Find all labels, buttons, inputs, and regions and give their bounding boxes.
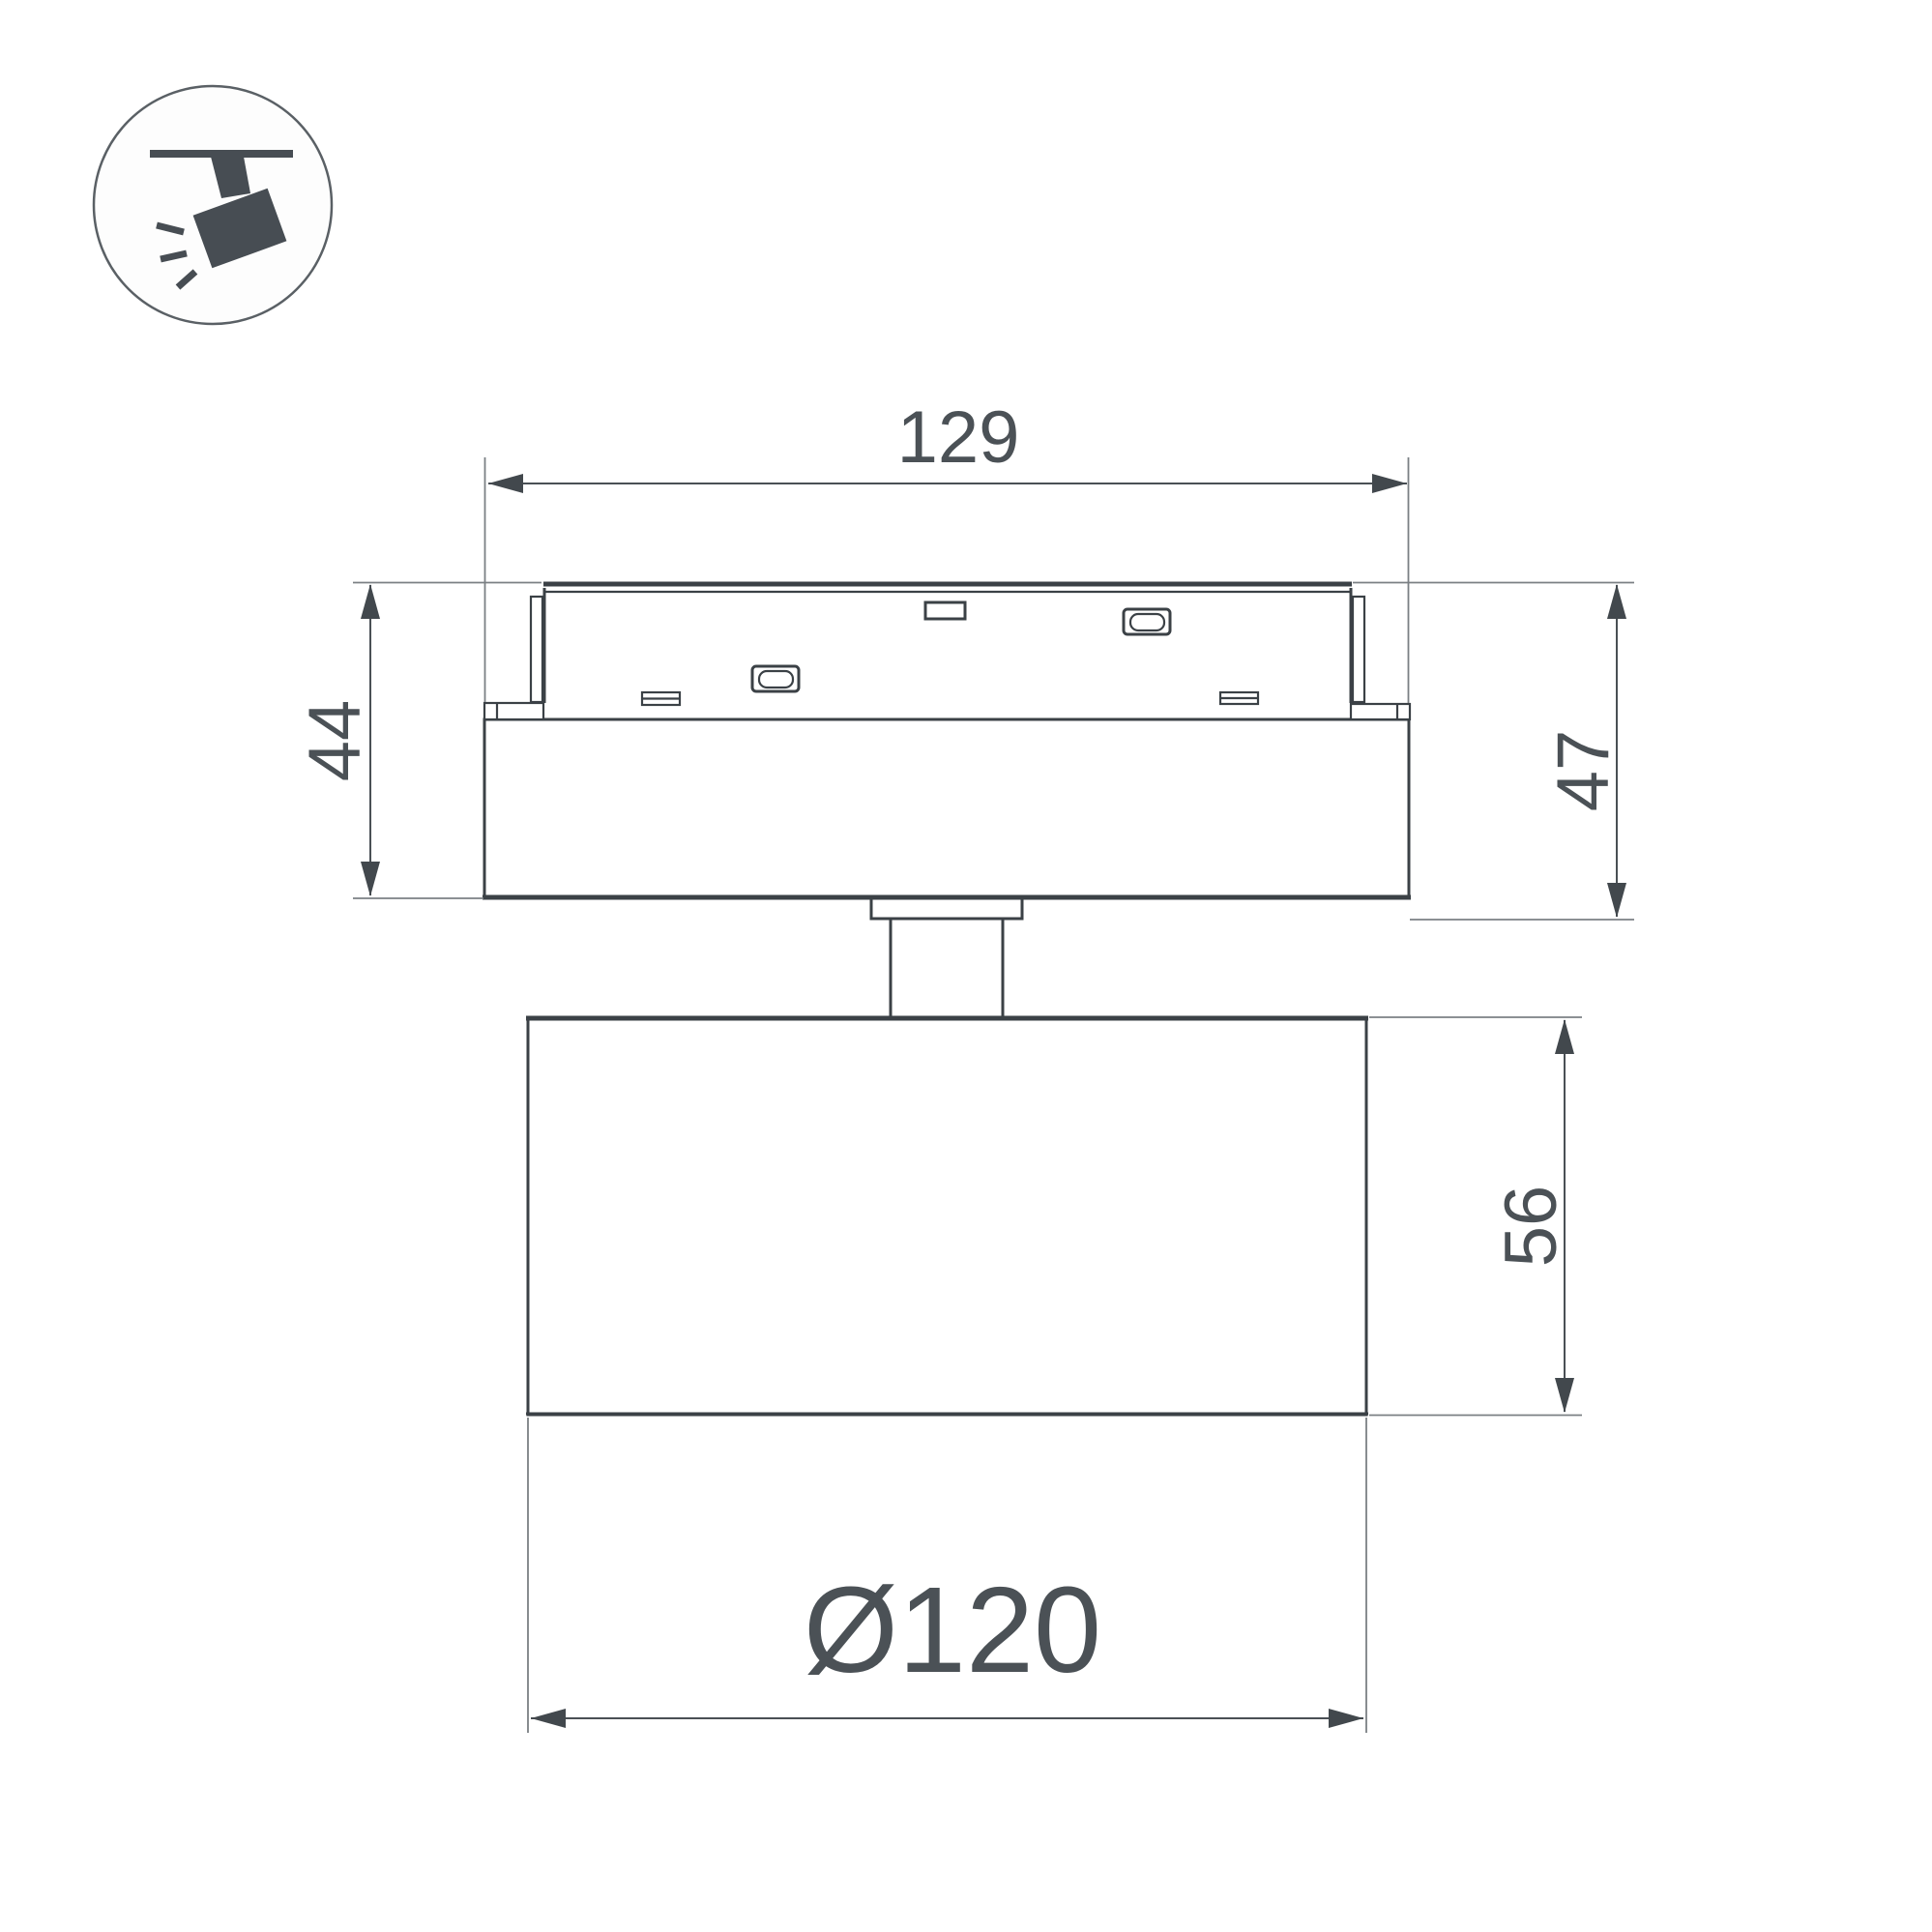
- adapter-button-left-inner: [759, 671, 793, 688]
- dimension-label: Ø120: [804, 1562, 1101, 1698]
- dimension-head-height: 56: [1369, 1017, 1582, 1416]
- arrowhead-up-icon: [361, 584, 380, 619]
- arrowhead-left-icon: [531, 1709, 566, 1728]
- arrowhead-up-icon: [1607, 584, 1626, 619]
- base-lip-left: [484, 703, 543, 719]
- arrowhead-up-icon: [1555, 1019, 1574, 1054]
- lamp-head-body: [528, 1017, 1366, 1415]
- dimension-label: 47: [1542, 730, 1625, 812]
- arrowhead-down-icon: [1607, 883, 1626, 918]
- swivel-stem: [891, 919, 1003, 1017]
- base-lip-right: [1351, 704, 1410, 719]
- arrowhead-right-icon: [1372, 474, 1407, 493]
- dimension-label: 44: [294, 700, 376, 782]
- adapter-button-right-inner: [1130, 614, 1164, 630]
- dimension-base-length: 129: [485, 396, 1409, 703]
- dimension-head-diameter: Ø120: [528, 1418, 1366, 1733]
- arrowhead-down-icon: [1555, 1378, 1574, 1413]
- fixture-side-view: [483, 584, 1411, 1415]
- icon-circle-border: [94, 86, 332, 324]
- dimension-label: 56: [1490, 1186, 1572, 1268]
- adapter-clip-right: [1353, 597, 1364, 702]
- icon-track-bar: [150, 150, 293, 158]
- swivel-collar: [871, 898, 1022, 919]
- track-spotlight-icon: [94, 86, 332, 324]
- arrowhead-right-icon: [1329, 1709, 1363, 1728]
- adapter-window-detail: [925, 602, 965, 619]
- adapter-clip-left: [531, 597, 542, 702]
- dimension-label: 129: [897, 396, 1020, 479]
- arrowhead-left-icon: [488, 474, 523, 493]
- dimension-drawing-canvas: 129 44 47 56 Ø120: [0, 0, 1932, 1932]
- driver-base-body: [484, 719, 1409, 897]
- arrowhead-down-icon: [361, 862, 380, 896]
